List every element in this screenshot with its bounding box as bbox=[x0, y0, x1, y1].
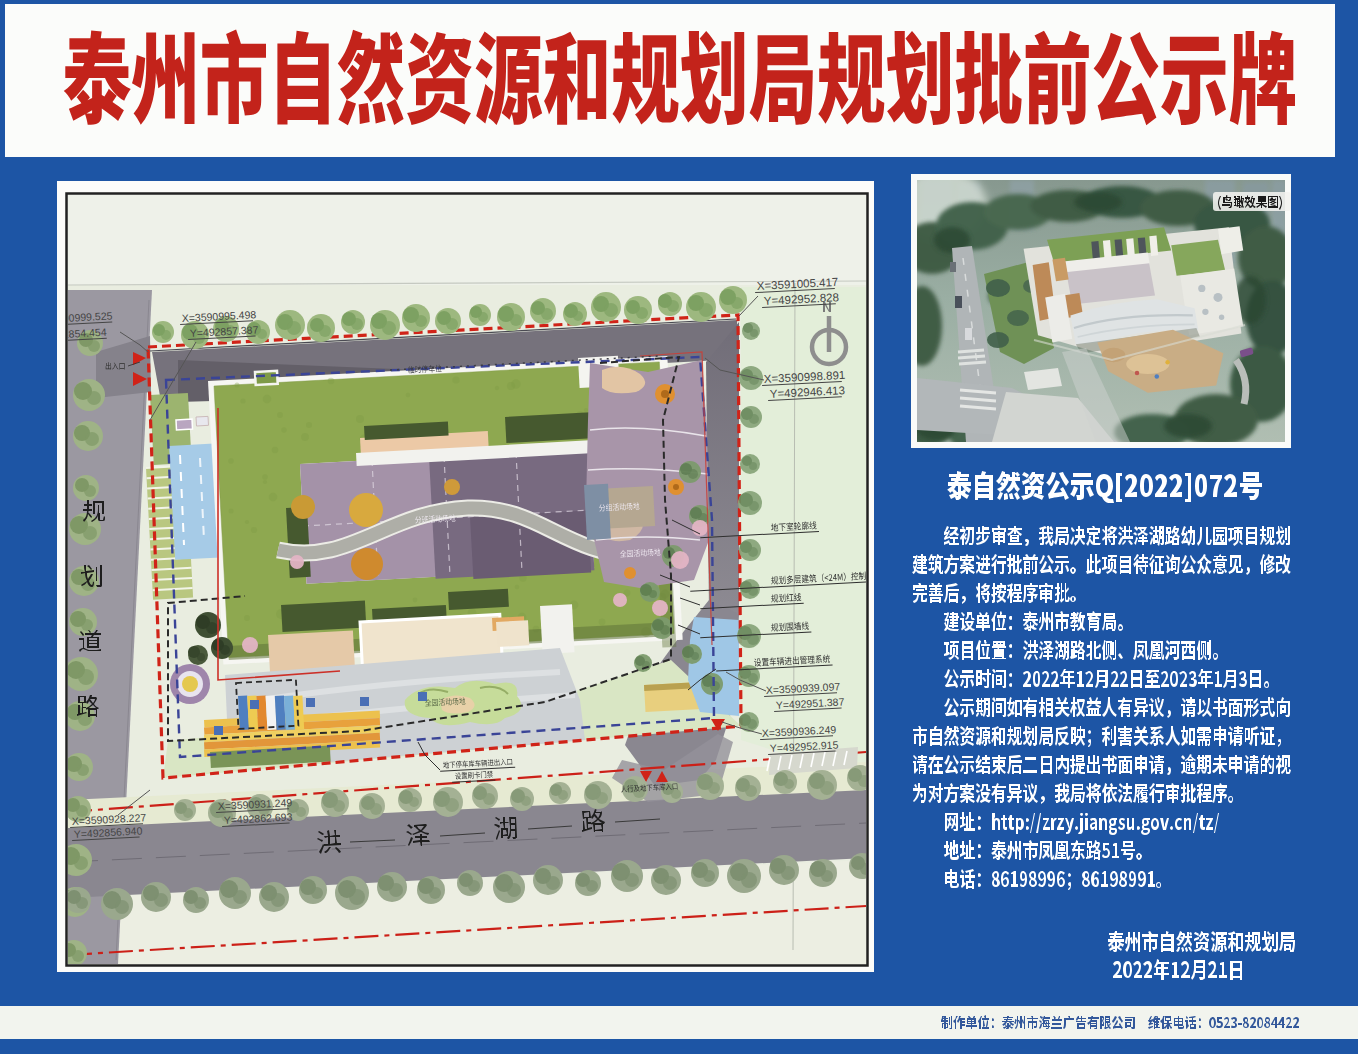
svg-text:2854.454: 2854.454 bbox=[62, 326, 107, 340]
